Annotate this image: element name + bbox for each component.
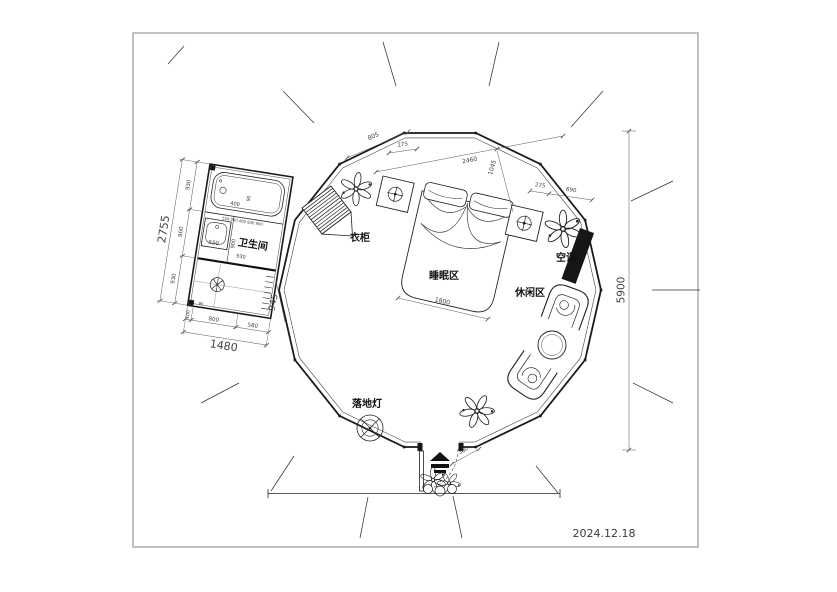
dim-panel-a: 805 bbox=[367, 131, 380, 142]
drawing-date: 2024.12.18 bbox=[573, 527, 636, 540]
dim-bath-h1: 930 bbox=[185, 179, 193, 191]
bathroom: 卫生间 400 90 550 900 400 930 900 550 900 9… bbox=[140, 155, 296, 359]
dim-bath-h2: 900 bbox=[178, 226, 186, 238]
floor-lamp-label: 落地灯 bbox=[352, 397, 382, 410]
dim-bath-w1: 100 bbox=[185, 310, 192, 320]
leisure-area-label: 休闲区 bbox=[514, 286, 545, 299]
dim-bath-h3: 930 bbox=[170, 273, 178, 285]
sleeping-area-label: 睡眠区 bbox=[429, 269, 459, 282]
entrance bbox=[418, 440, 466, 500]
wall-post bbox=[210, 165, 216, 171]
dim-panel-d: 690 bbox=[566, 187, 578, 194]
flower-pot bbox=[435, 486, 445, 496]
flower-pot bbox=[424, 485, 433, 494]
nightstand-left bbox=[376, 176, 414, 212]
air-conditioner-label: 空调 bbox=[556, 251, 576, 264]
door-post-left bbox=[418, 443, 423, 451]
door-leaf bbox=[420, 451, 424, 491]
cad-sheet: 卫生间 400 90 550 900 400 930 900 550 900 9… bbox=[0, 0, 837, 592]
nightstand-right bbox=[505, 205, 543, 241]
wardrobe-label: 衣柜 bbox=[350, 231, 370, 244]
wall-post bbox=[189, 300, 195, 306]
dim-height-total: 5900 bbox=[616, 277, 628, 304]
ground-line bbox=[268, 489, 560, 498]
floor-plan-canvas: 卫生间 400 90 550 900 400 930 900 550 900 9… bbox=[0, 0, 837, 592]
dim-bath-offset: 945 bbox=[267, 293, 280, 312]
entry-arrow-icon bbox=[430, 452, 450, 473]
flower-pot bbox=[448, 485, 457, 494]
round-table bbox=[538, 331, 566, 359]
dim-tub-offset: 90 bbox=[246, 195, 253, 202]
